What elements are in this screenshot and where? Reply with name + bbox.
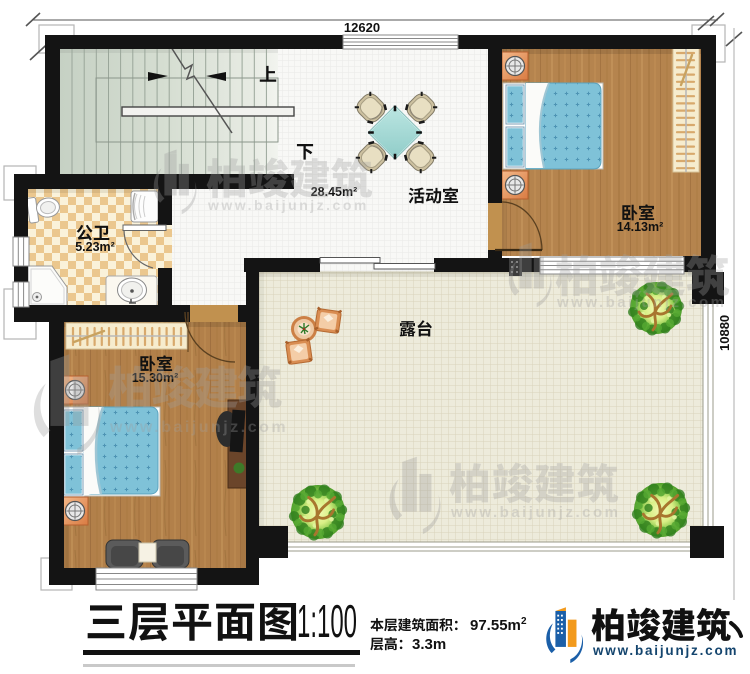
svg-text:www.baijunjz.com: www.baijunjz.com [556, 294, 726, 311]
svg-text:12620: 12620 [344, 20, 380, 35]
svg-text:5.23m²: 5.23m² [75, 240, 115, 254]
svg-text:www.baijunjz.com: www.baijunjz.com [592, 643, 738, 658]
svg-text:1:100: 1:100 [297, 595, 357, 647]
svg-text:2: 2 [521, 616, 527, 627]
svg-text:www.baijunjz.com: www.baijunjz.com [207, 197, 369, 213]
svg-text:www.baijunjz.com: www.baijunjz.com [450, 504, 620, 521]
svg-text:14.13m²: 14.13m² [617, 220, 664, 234]
svg-text:3.3m: 3.3m [412, 636, 446, 653]
svg-text:97.55m: 97.55m [470, 617, 521, 634]
svg-text:www.baijunjz.com: www.baijunjz.com [109, 419, 288, 436]
svg-text:10880: 10880 [717, 315, 732, 351]
